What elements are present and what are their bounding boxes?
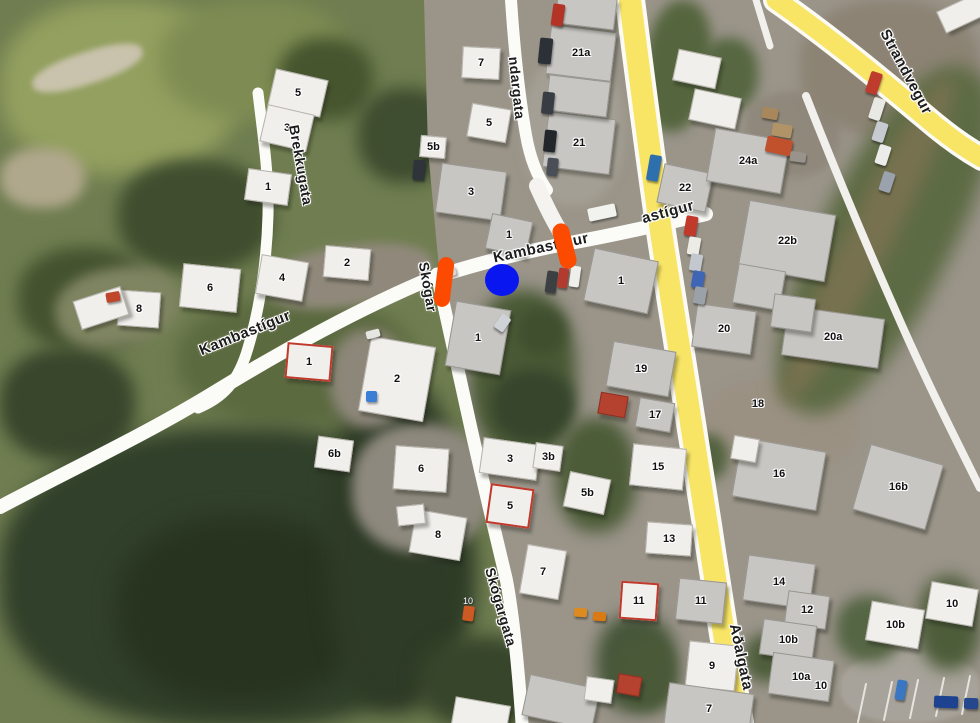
blue-dot-marker[interactable]	[485, 264, 519, 296]
map-viewport[interactable]: 5314268126b6833b55b71315755b31121a212224…	[0, 0, 980, 723]
orange-pill-marker[interactable]	[550, 222, 578, 271]
markers-layer	[0, 0, 980, 723]
orange-pill-marker[interactable]	[433, 256, 455, 308]
